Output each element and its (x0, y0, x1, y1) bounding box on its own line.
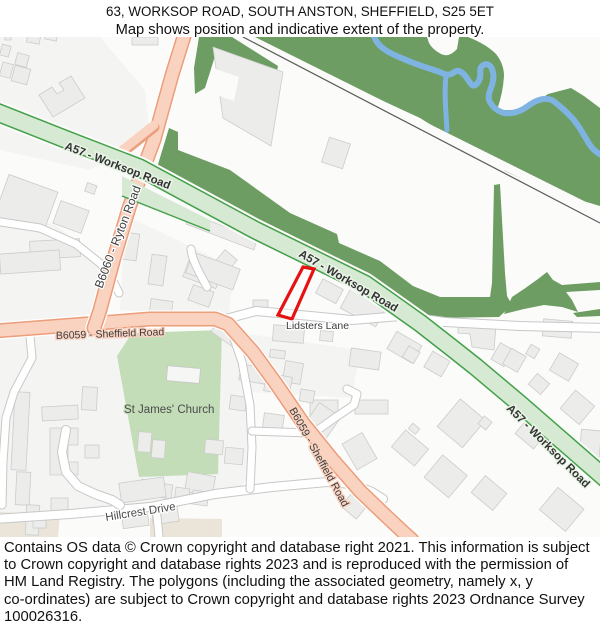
svg-text:Lidsters Lane: Lidsters Lane (286, 320, 349, 332)
svg-text:St James' Church: St James' Church (124, 404, 214, 416)
